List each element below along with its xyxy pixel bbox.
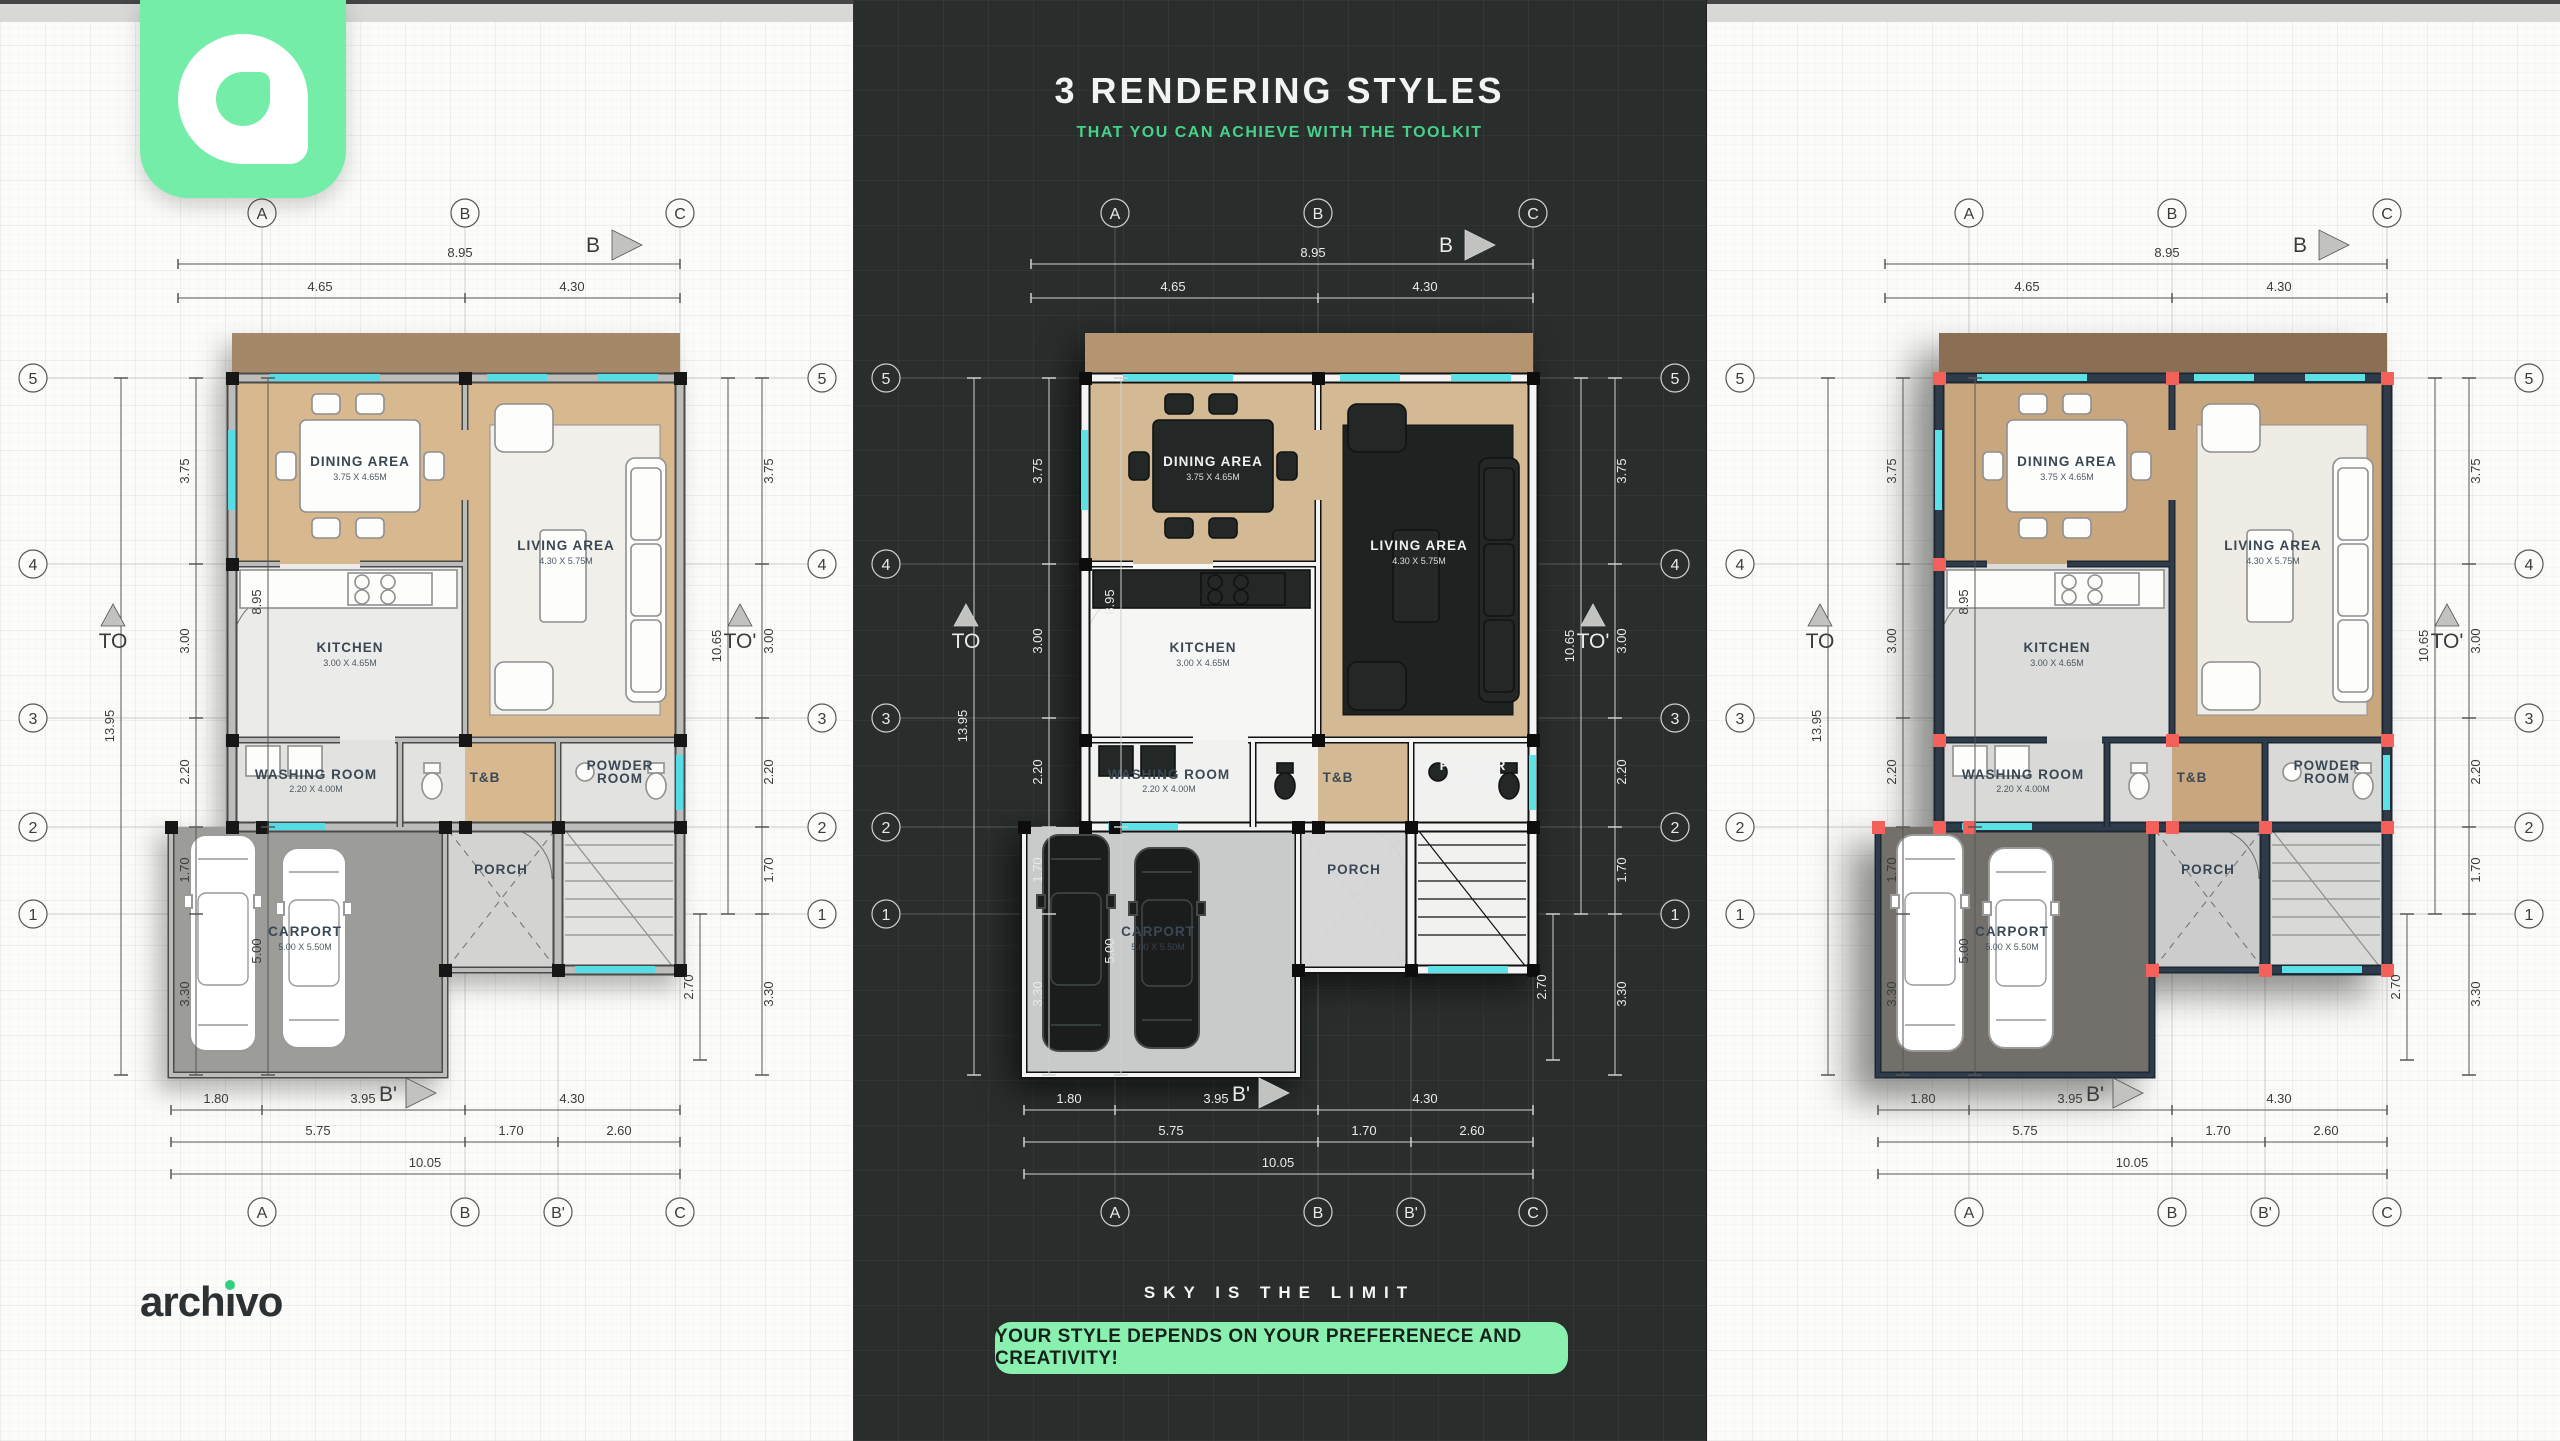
svg-text:B': B' bbox=[379, 1083, 397, 1106]
porch-label: PORCH bbox=[1327, 862, 1381, 877]
kitchen-label: KITCHEN bbox=[2024, 640, 2091, 655]
svg-text:5.75: 5.75 bbox=[1158, 1123, 1183, 1138]
svg-text:2.70: 2.70 bbox=[681, 974, 696, 999]
svg-text:3.75: 3.75 bbox=[177, 458, 192, 483]
svg-text:2.20: 2.20 bbox=[761, 759, 776, 784]
svg-text:4.30: 4.30 bbox=[1412, 1091, 1437, 1106]
svg-text:1.70: 1.70 bbox=[2468, 857, 2483, 882]
panel-style-light: DINING AREA 3.75 X 4.65M LIVING AREA 4.3… bbox=[0, 0, 853, 1441]
svg-text:TO': TO' bbox=[2431, 630, 2464, 653]
porch-floor bbox=[1298, 827, 1411, 970]
svg-text:B: B bbox=[2293, 234, 2307, 257]
svg-text:B: B bbox=[2167, 1205, 2178, 1222]
floor-plan-slot-1: DINING AREA 3.75 X 4.65M LIVING AREA 4.3… bbox=[0, 180, 853, 1265]
svg-text:3: 3 bbox=[1736, 711, 1745, 728]
kitchen-label: KITCHEN bbox=[1170, 640, 1237, 655]
svg-text:3.75: 3.75 bbox=[1614, 458, 1629, 483]
dining-label: DINING AREA bbox=[1163, 454, 1263, 469]
svg-text:3.75: 3.75 bbox=[2468, 458, 2483, 483]
svg-text:A: A bbox=[1110, 206, 1121, 223]
svg-text:3.95: 3.95 bbox=[1203, 1091, 1228, 1106]
svg-text:3: 3 bbox=[29, 711, 38, 728]
svg-text:4.30: 4.30 bbox=[1412, 279, 1437, 294]
svg-text:3.95: 3.95 bbox=[350, 1091, 375, 1106]
page-title: 3 RENDERING STYLES bbox=[853, 70, 1706, 112]
svg-text:A: A bbox=[1964, 206, 1975, 223]
svg-text:3.75: 3.75 bbox=[1030, 458, 1045, 483]
svg-text:TO': TO' bbox=[724, 630, 757, 653]
svg-text:1.70: 1.70 bbox=[177, 857, 192, 882]
svg-text:5: 5 bbox=[882, 371, 891, 388]
svg-text:1.70: 1.70 bbox=[1351, 1123, 1376, 1138]
style-cta-button[interactable]: YOUR STYLE DEPENDS ON YOUR PREFERENECE A… bbox=[995, 1322, 1568, 1374]
svg-text:8.95: 8.95 bbox=[447, 245, 472, 260]
svg-text:C: C bbox=[674, 1205, 686, 1222]
tb-label: T&B bbox=[470, 770, 501, 785]
svg-text:10.65: 10.65 bbox=[709, 630, 724, 663]
svg-text:8.95: 8.95 bbox=[1102, 589, 1117, 614]
svg-text:3.30: 3.30 bbox=[2468, 981, 2483, 1006]
kitchen-dims: 3.00 X 4.65M bbox=[1176, 658, 1230, 668]
svg-text:B': B' bbox=[2086, 1083, 2104, 1106]
svg-text:1: 1 bbox=[882, 907, 891, 924]
svg-text:2.20: 2.20 bbox=[1030, 759, 1045, 784]
svg-text:1: 1 bbox=[1671, 907, 1680, 924]
carport-dims: 5.00 X 5.50M bbox=[1985, 942, 2039, 952]
svg-text:3.00: 3.00 bbox=[2468, 628, 2483, 653]
archivo-logo-icon bbox=[140, 0, 346, 198]
svg-text:4.30: 4.30 bbox=[559, 279, 584, 294]
svg-text:5: 5 bbox=[818, 371, 827, 388]
svg-text:4.30: 4.30 bbox=[2266, 279, 2291, 294]
svg-text:8.95: 8.95 bbox=[249, 589, 264, 614]
kitchen-dims: 3.00 X 4.65M bbox=[323, 658, 377, 668]
kitchen-dims: 3.00 X 4.65M bbox=[2030, 658, 2084, 668]
living-label: LIVING AREA bbox=[2224, 538, 2322, 553]
svg-text:5.00: 5.00 bbox=[1956, 938, 1971, 963]
svg-text:3.30: 3.30 bbox=[1884, 981, 1899, 1006]
svg-text:13.95: 13.95 bbox=[102, 710, 117, 743]
svg-text:4: 4 bbox=[818, 557, 827, 574]
brand-wordmark: archıvo bbox=[140, 1278, 282, 1326]
toilet-tb bbox=[1275, 763, 1295, 799]
svg-text:3: 3 bbox=[1671, 711, 1680, 728]
svg-text:5: 5 bbox=[2525, 371, 2534, 388]
svg-text:5.75: 5.75 bbox=[2012, 1123, 2037, 1138]
kitchen-label: KITCHEN bbox=[317, 640, 384, 655]
svg-text:4.65: 4.65 bbox=[307, 279, 332, 294]
svg-text:2.70: 2.70 bbox=[1534, 974, 1549, 999]
svg-text:5: 5 bbox=[1736, 371, 1745, 388]
svg-text:4.65: 4.65 bbox=[1160, 279, 1185, 294]
living-label: LIVING AREA bbox=[517, 538, 615, 553]
svg-text:5: 5 bbox=[1671, 371, 1680, 388]
living-dims: 4.30 X 5.75M bbox=[539, 556, 593, 566]
svg-text:4: 4 bbox=[1671, 557, 1680, 574]
svg-text:10.65: 10.65 bbox=[2416, 630, 2431, 663]
svg-text:8.95: 8.95 bbox=[1956, 589, 1971, 614]
svg-text:4.65: 4.65 bbox=[2014, 279, 2039, 294]
svg-text:B: B bbox=[586, 234, 600, 257]
dining-dims: 3.75 X 4.65M bbox=[333, 472, 387, 482]
svg-text:B: B bbox=[1439, 234, 1453, 257]
svg-text:4: 4 bbox=[1736, 557, 1745, 574]
svg-text:3.75: 3.75 bbox=[761, 458, 776, 483]
top-wall-strip bbox=[0, 0, 853, 22]
svg-text:2: 2 bbox=[29, 820, 38, 837]
roof-deck-band bbox=[1085, 333, 1533, 378]
dining-label: DINING AREA bbox=[2017, 454, 2117, 469]
powder-label-2: ROOM bbox=[597, 771, 643, 786]
svg-text:5.75: 5.75 bbox=[305, 1123, 330, 1138]
svg-text:B: B bbox=[460, 206, 471, 223]
svg-text:TO: TO bbox=[99, 630, 128, 653]
washing-label: WASHING ROOM bbox=[1108, 767, 1230, 782]
svg-text:4.30: 4.30 bbox=[2266, 1091, 2291, 1106]
svg-text:B': B' bbox=[1404, 1205, 1418, 1222]
svg-text:C: C bbox=[674, 206, 686, 223]
svg-text:2.70: 2.70 bbox=[2388, 974, 2403, 999]
svg-text:1.70: 1.70 bbox=[1884, 857, 1899, 882]
svg-text:B': B' bbox=[551, 1205, 565, 1222]
porch-label: PORCH bbox=[474, 862, 528, 877]
svg-text:B': B' bbox=[2258, 1205, 2272, 1222]
kitchen-counter bbox=[1093, 570, 1310, 608]
porch-floor bbox=[445, 827, 558, 970]
svg-text:2.20: 2.20 bbox=[2468, 759, 2483, 784]
svg-text:5.00: 5.00 bbox=[1102, 938, 1117, 963]
powder-label-2: ROOM bbox=[1450, 771, 1496, 786]
svg-text:1.70: 1.70 bbox=[1614, 857, 1629, 882]
carport-dims: 5.00 X 5.50M bbox=[278, 942, 332, 952]
svg-text:3.30: 3.30 bbox=[1614, 981, 1629, 1006]
floor-plan-slot-3: DINING AREA 3.75 X 4.65M LIVING AREA 4.3… bbox=[1707, 180, 2560, 1265]
svg-text:1.80: 1.80 bbox=[203, 1091, 228, 1106]
carport-label: CARPORT bbox=[1121, 924, 1195, 939]
svg-text:1.80: 1.80 bbox=[1910, 1091, 1935, 1106]
svg-text:A: A bbox=[1964, 1205, 1975, 1222]
svg-text:2.20: 2.20 bbox=[177, 759, 192, 784]
toilet-tb bbox=[422, 763, 442, 799]
svg-text:3: 3 bbox=[882, 711, 891, 728]
roof-deck-band bbox=[232, 333, 680, 378]
panel-style-dark: 3 RENDERING STYLES THAT YOU CAN ACHIEVE … bbox=[853, 0, 1706, 1441]
svg-text:10.65: 10.65 bbox=[1562, 630, 1577, 663]
svg-text:10.05: 10.05 bbox=[1262, 1155, 1295, 1170]
svg-text:1.70: 1.70 bbox=[2205, 1123, 2230, 1138]
svg-text:2.60: 2.60 bbox=[2313, 1123, 2338, 1138]
washing-dims: 2.20 X 4.00M bbox=[1996, 784, 2050, 794]
floor-plan: DINING AREA 3.75 X 4.65M LIVING AREA 4.3… bbox=[1707, 180, 2560, 1265]
porch-label: PORCH bbox=[2181, 862, 2235, 877]
svg-text:TO: TO bbox=[1806, 630, 1835, 653]
svg-text:3.75: 3.75 bbox=[1884, 458, 1899, 483]
svg-text:2: 2 bbox=[882, 820, 891, 837]
living-dims: 4.30 X 5.75M bbox=[2246, 556, 2300, 566]
svg-text:2: 2 bbox=[818, 820, 827, 837]
floor-plan: DINING AREA 3.75 X 4.65M LIVING AREA 4.3… bbox=[853, 180, 1706, 1265]
tagline: SKY IS THE LIMIT bbox=[853, 1283, 1706, 1303]
svg-text:2.60: 2.60 bbox=[1459, 1123, 1484, 1138]
washing-label: WASHING ROOM bbox=[1962, 767, 2084, 782]
svg-text:B: B bbox=[1313, 1205, 1324, 1222]
svg-text:2: 2 bbox=[1736, 820, 1745, 837]
svg-text:B: B bbox=[1313, 206, 1324, 223]
svg-text:2: 2 bbox=[1671, 820, 1680, 837]
svg-text:4: 4 bbox=[2525, 557, 2534, 574]
svg-text:B: B bbox=[460, 1205, 471, 1222]
svg-text:2.20: 2.20 bbox=[1614, 759, 1629, 784]
dining-dims: 3.75 X 4.65M bbox=[1186, 472, 1240, 482]
floor-plan-slot-2: DINING AREA 3.75 X 4.65M LIVING AREA 4.3… bbox=[853, 180, 1706, 1265]
svg-text:3.00: 3.00 bbox=[1030, 628, 1045, 653]
carport-label: CARPORT bbox=[1975, 924, 2049, 939]
svg-text:4: 4 bbox=[882, 557, 891, 574]
page: { "header": { "title": "3 RENDERING STYL… bbox=[0, 0, 2560, 1441]
house: DINING AREA 3.75 X 4.65M LIVING AREA 4.3… bbox=[1018, 333, 1540, 1075]
svg-text:B: B bbox=[2167, 206, 2178, 223]
roof-deck-band bbox=[1939, 333, 2387, 378]
svg-text:1.70: 1.70 bbox=[1030, 857, 1045, 882]
svg-text:1: 1 bbox=[29, 907, 38, 924]
svg-text:4: 4 bbox=[29, 557, 38, 574]
tb-label: T&B bbox=[2177, 770, 2208, 785]
svg-text:3.00: 3.00 bbox=[1614, 628, 1629, 653]
svg-text:4.30: 4.30 bbox=[559, 1091, 584, 1106]
header: 3 RENDERING STYLES THAT YOU CAN ACHIEVE … bbox=[853, 70, 1706, 142]
svg-text:3: 3 bbox=[818, 711, 827, 728]
svg-text:2.20: 2.20 bbox=[1884, 759, 1899, 784]
washing-dims: 2.20 X 4.00M bbox=[289, 784, 343, 794]
svg-text:1: 1 bbox=[818, 907, 827, 924]
svg-text:A: A bbox=[1110, 1205, 1121, 1222]
living-label: LIVING AREA bbox=[1370, 538, 1468, 553]
kitchen-counter bbox=[240, 570, 457, 608]
svg-text:2: 2 bbox=[2525, 820, 2534, 837]
svg-text:1: 1 bbox=[1736, 907, 1745, 924]
powder-label-2: ROOM bbox=[2304, 771, 2350, 786]
svg-text:C: C bbox=[1527, 206, 1539, 223]
svg-text:10.05: 10.05 bbox=[409, 1155, 442, 1170]
svg-text:3.00: 3.00 bbox=[761, 628, 776, 653]
svg-text:1.70: 1.70 bbox=[498, 1123, 523, 1138]
svg-text:3.95: 3.95 bbox=[2057, 1091, 2082, 1106]
washing-label: WASHING ROOM bbox=[255, 767, 377, 782]
svg-text:13.95: 13.95 bbox=[955, 710, 970, 743]
house: DINING AREA 3.75 X 4.65M LIVING AREA 4.3… bbox=[1872, 333, 2394, 1075]
washing-dims: 2.20 X 4.00M bbox=[1142, 784, 1196, 794]
svg-text:3.30: 3.30 bbox=[761, 981, 776, 1006]
svg-text:8.95: 8.95 bbox=[1300, 245, 1325, 260]
svg-text:A: A bbox=[257, 206, 268, 223]
page-subtitle: THAT YOU CAN ACHIEVE WITH THE TOOLKIT bbox=[853, 124, 1706, 142]
dining-label: DINING AREA bbox=[310, 454, 410, 469]
svg-text:C: C bbox=[2381, 206, 2393, 223]
brand-i-dot: ı bbox=[225, 1278, 236, 1325]
svg-text:3.30: 3.30 bbox=[177, 981, 192, 1006]
carport-label: CARPORT bbox=[268, 924, 342, 939]
svg-text:TO: TO bbox=[952, 630, 981, 653]
svg-text:13.95: 13.95 bbox=[1809, 710, 1824, 743]
svg-text:3.30: 3.30 bbox=[1030, 981, 1045, 1006]
svg-text:8.95: 8.95 bbox=[2154, 245, 2179, 260]
house: DINING AREA 3.75 X 4.65M LIVING AREA 4.3… bbox=[165, 333, 687, 1075]
top-wall-strip bbox=[1707, 0, 2560, 22]
svg-text:C: C bbox=[2381, 1205, 2393, 1222]
svg-text:A: A bbox=[257, 1205, 268, 1222]
kitchen-counter bbox=[1947, 570, 2164, 608]
tb-label: T&B bbox=[1323, 770, 1354, 785]
floor-plan: DINING AREA 3.75 X 4.65M LIVING AREA 4.3… bbox=[0, 180, 853, 1265]
panel-style-classic: DINING AREA 3.75 X 4.65M LIVING AREA 4.3… bbox=[1707, 0, 2560, 1441]
porch-floor bbox=[2152, 827, 2265, 970]
svg-text:5: 5 bbox=[29, 371, 38, 388]
svg-text:1.70: 1.70 bbox=[761, 857, 776, 882]
toilet-tb bbox=[2129, 763, 2149, 799]
svg-text:1.80: 1.80 bbox=[1056, 1091, 1081, 1106]
carport-dims: 5.00 X 5.50M bbox=[1131, 942, 1185, 952]
svg-text:5.00: 5.00 bbox=[249, 938, 264, 963]
svg-text:TO': TO' bbox=[1577, 630, 1610, 653]
svg-text:B': B' bbox=[1232, 1083, 1250, 1106]
living-dims: 4.30 X 5.75M bbox=[1392, 556, 1446, 566]
svg-text:3: 3 bbox=[2525, 711, 2534, 728]
svg-text:3.00: 3.00 bbox=[177, 628, 192, 653]
svg-text:10.05: 10.05 bbox=[2116, 1155, 2149, 1170]
dining-dims: 3.75 X 4.65M bbox=[2040, 472, 2094, 482]
svg-text:1: 1 bbox=[2525, 907, 2534, 924]
svg-text:2.60: 2.60 bbox=[606, 1123, 631, 1138]
svg-text:3.00: 3.00 bbox=[1884, 628, 1899, 653]
svg-text:C: C bbox=[1527, 1205, 1539, 1222]
